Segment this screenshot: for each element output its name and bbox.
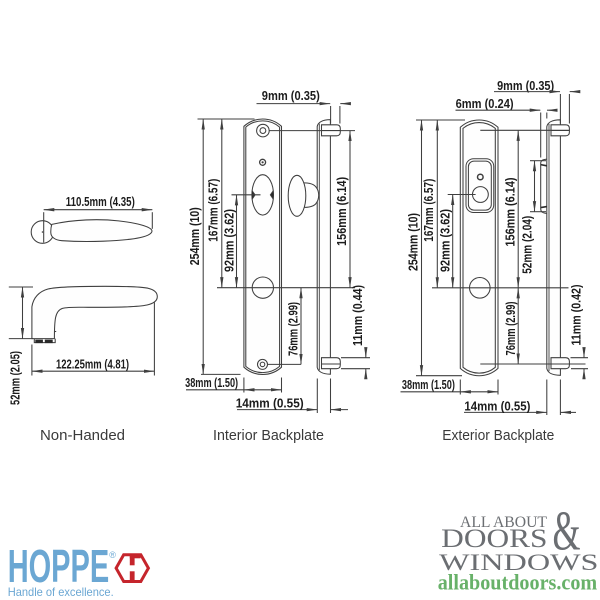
svg-text:156mm (6.14): 156mm (6.14) xyxy=(503,178,517,247)
svg-text:110.5mm (4.35): 110.5mm (4.35) xyxy=(66,195,135,209)
svg-text:38mm (1.50): 38mm (1.50) xyxy=(402,378,455,392)
svg-text:HOPPE: HOPPE xyxy=(8,540,110,592)
svg-text:11mm (0.42): 11mm (0.42) xyxy=(569,285,583,346)
svg-text:122.25mm (4.81): 122.25mm (4.81) xyxy=(56,358,129,372)
svg-text:11mm (0.44): 11mm (0.44) xyxy=(351,285,365,346)
svg-text:DOORS: DOORS xyxy=(441,523,547,553)
svg-text:Handle of excellence.: Handle of excellence. xyxy=(8,585,114,599)
svg-text:Interior Backplate: Interior Backplate xyxy=(213,427,324,444)
svg-text:9mm (0.35): 9mm (0.35) xyxy=(497,79,554,93)
svg-text:&: & xyxy=(553,501,581,563)
svg-text:156mm (6.14): 156mm (6.14) xyxy=(335,177,349,246)
svg-text:167mm (6.57): 167mm (6.57) xyxy=(422,179,436,242)
svg-text:92mm (3.62): 92mm (3.62) xyxy=(222,209,236,272)
svg-text:254mm (10): 254mm (10) xyxy=(406,213,420,271)
svg-text:52mm (2.05): 52mm (2.05) xyxy=(9,351,23,405)
svg-text:254mm (10): 254mm (10) xyxy=(188,207,202,265)
svg-text:allaboutdoors.com: allaboutdoors.com xyxy=(438,569,598,594)
svg-text:76mm (2.99): 76mm (2.99) xyxy=(504,302,518,356)
svg-text:14mm (0.55): 14mm (0.55) xyxy=(464,400,530,414)
svg-text:®: ® xyxy=(109,550,116,560)
svg-text:92mm (3.62): 92mm (3.62) xyxy=(439,209,453,272)
svg-text:38mm (1.50): 38mm (1.50) xyxy=(185,376,238,390)
svg-text:167mm (6.57): 167mm (6.57) xyxy=(207,179,221,242)
svg-text:9mm (0.35): 9mm (0.35) xyxy=(262,89,320,103)
svg-text:Exterior Backplate: Exterior Backplate xyxy=(442,427,554,444)
svg-text:52mm (2.04): 52mm (2.04) xyxy=(520,216,534,274)
svg-text:76mm (2.99): 76mm (2.99) xyxy=(287,302,301,356)
svg-text:6mm (0.24): 6mm (0.24) xyxy=(456,97,514,111)
svg-text:14mm (0.55): 14mm (0.55) xyxy=(236,396,304,410)
svg-text:Non-Handed: Non-Handed xyxy=(40,427,125,444)
